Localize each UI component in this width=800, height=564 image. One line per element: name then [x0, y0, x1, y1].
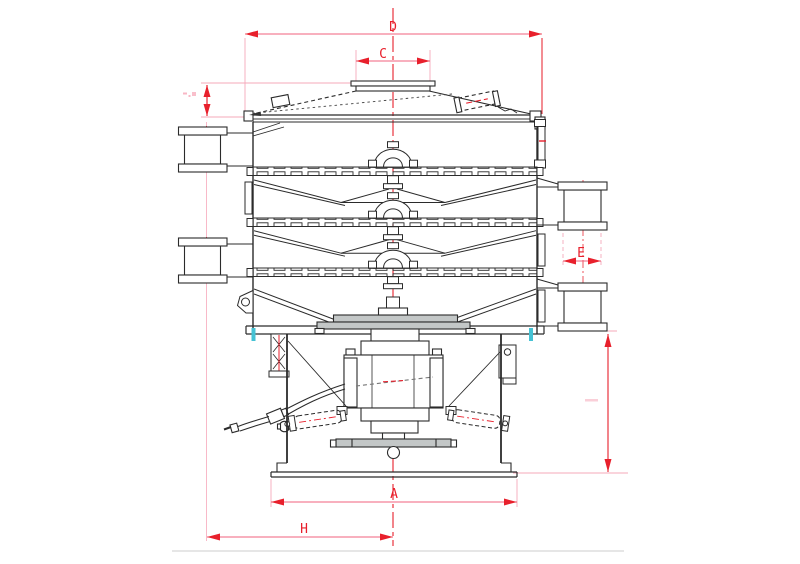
- dome-1: [368, 142, 418, 168]
- lifting-lug: [238, 291, 254, 314]
- outlet-right-lower: [537, 279, 607, 331]
- dim-label-E: E: [577, 246, 585, 261]
- dim-label-H: H: [300, 522, 308, 537]
- ball-cleaning-domes: [368, 142, 418, 269]
- dimension-lines: [207, 34, 608, 537]
- eccentric-weight-plate: [336, 439, 451, 447]
- outlet-left-upper: [179, 123, 285, 172]
- vibration-motor: [315, 308, 475, 459]
- motor-mount-plate: [317, 322, 470, 329]
- outlet-left-lower: [179, 238, 254, 283]
- dim-label-C: C: [379, 47, 387, 62]
- technical-drawing-canvas: D C E A H: [0, 0, 800, 564]
- outlet-right-upper: [537, 178, 607, 230]
- upper-weight-disc: [334, 315, 458, 322]
- screen-band-2: [253, 218, 537, 227]
- inlet-collar: [351, 81, 435, 86]
- lid-clamp-icon: [271, 95, 290, 108]
- dome-3: [368, 243, 418, 269]
- dim-label-D: D: [389, 20, 397, 35]
- vibrating-screen-drawing: D C E A H: [0, 0, 800, 564]
- screen-band-1: [253, 167, 537, 176]
- power-cable: [224, 384, 345, 433]
- dim-label-A: A: [390, 487, 398, 502]
- dome-2: [368, 193, 418, 219]
- bottom-ball: [388, 447, 400, 459]
- dimension-arrows: [204, 31, 612, 541]
- screen-band-3: [253, 268, 537, 277]
